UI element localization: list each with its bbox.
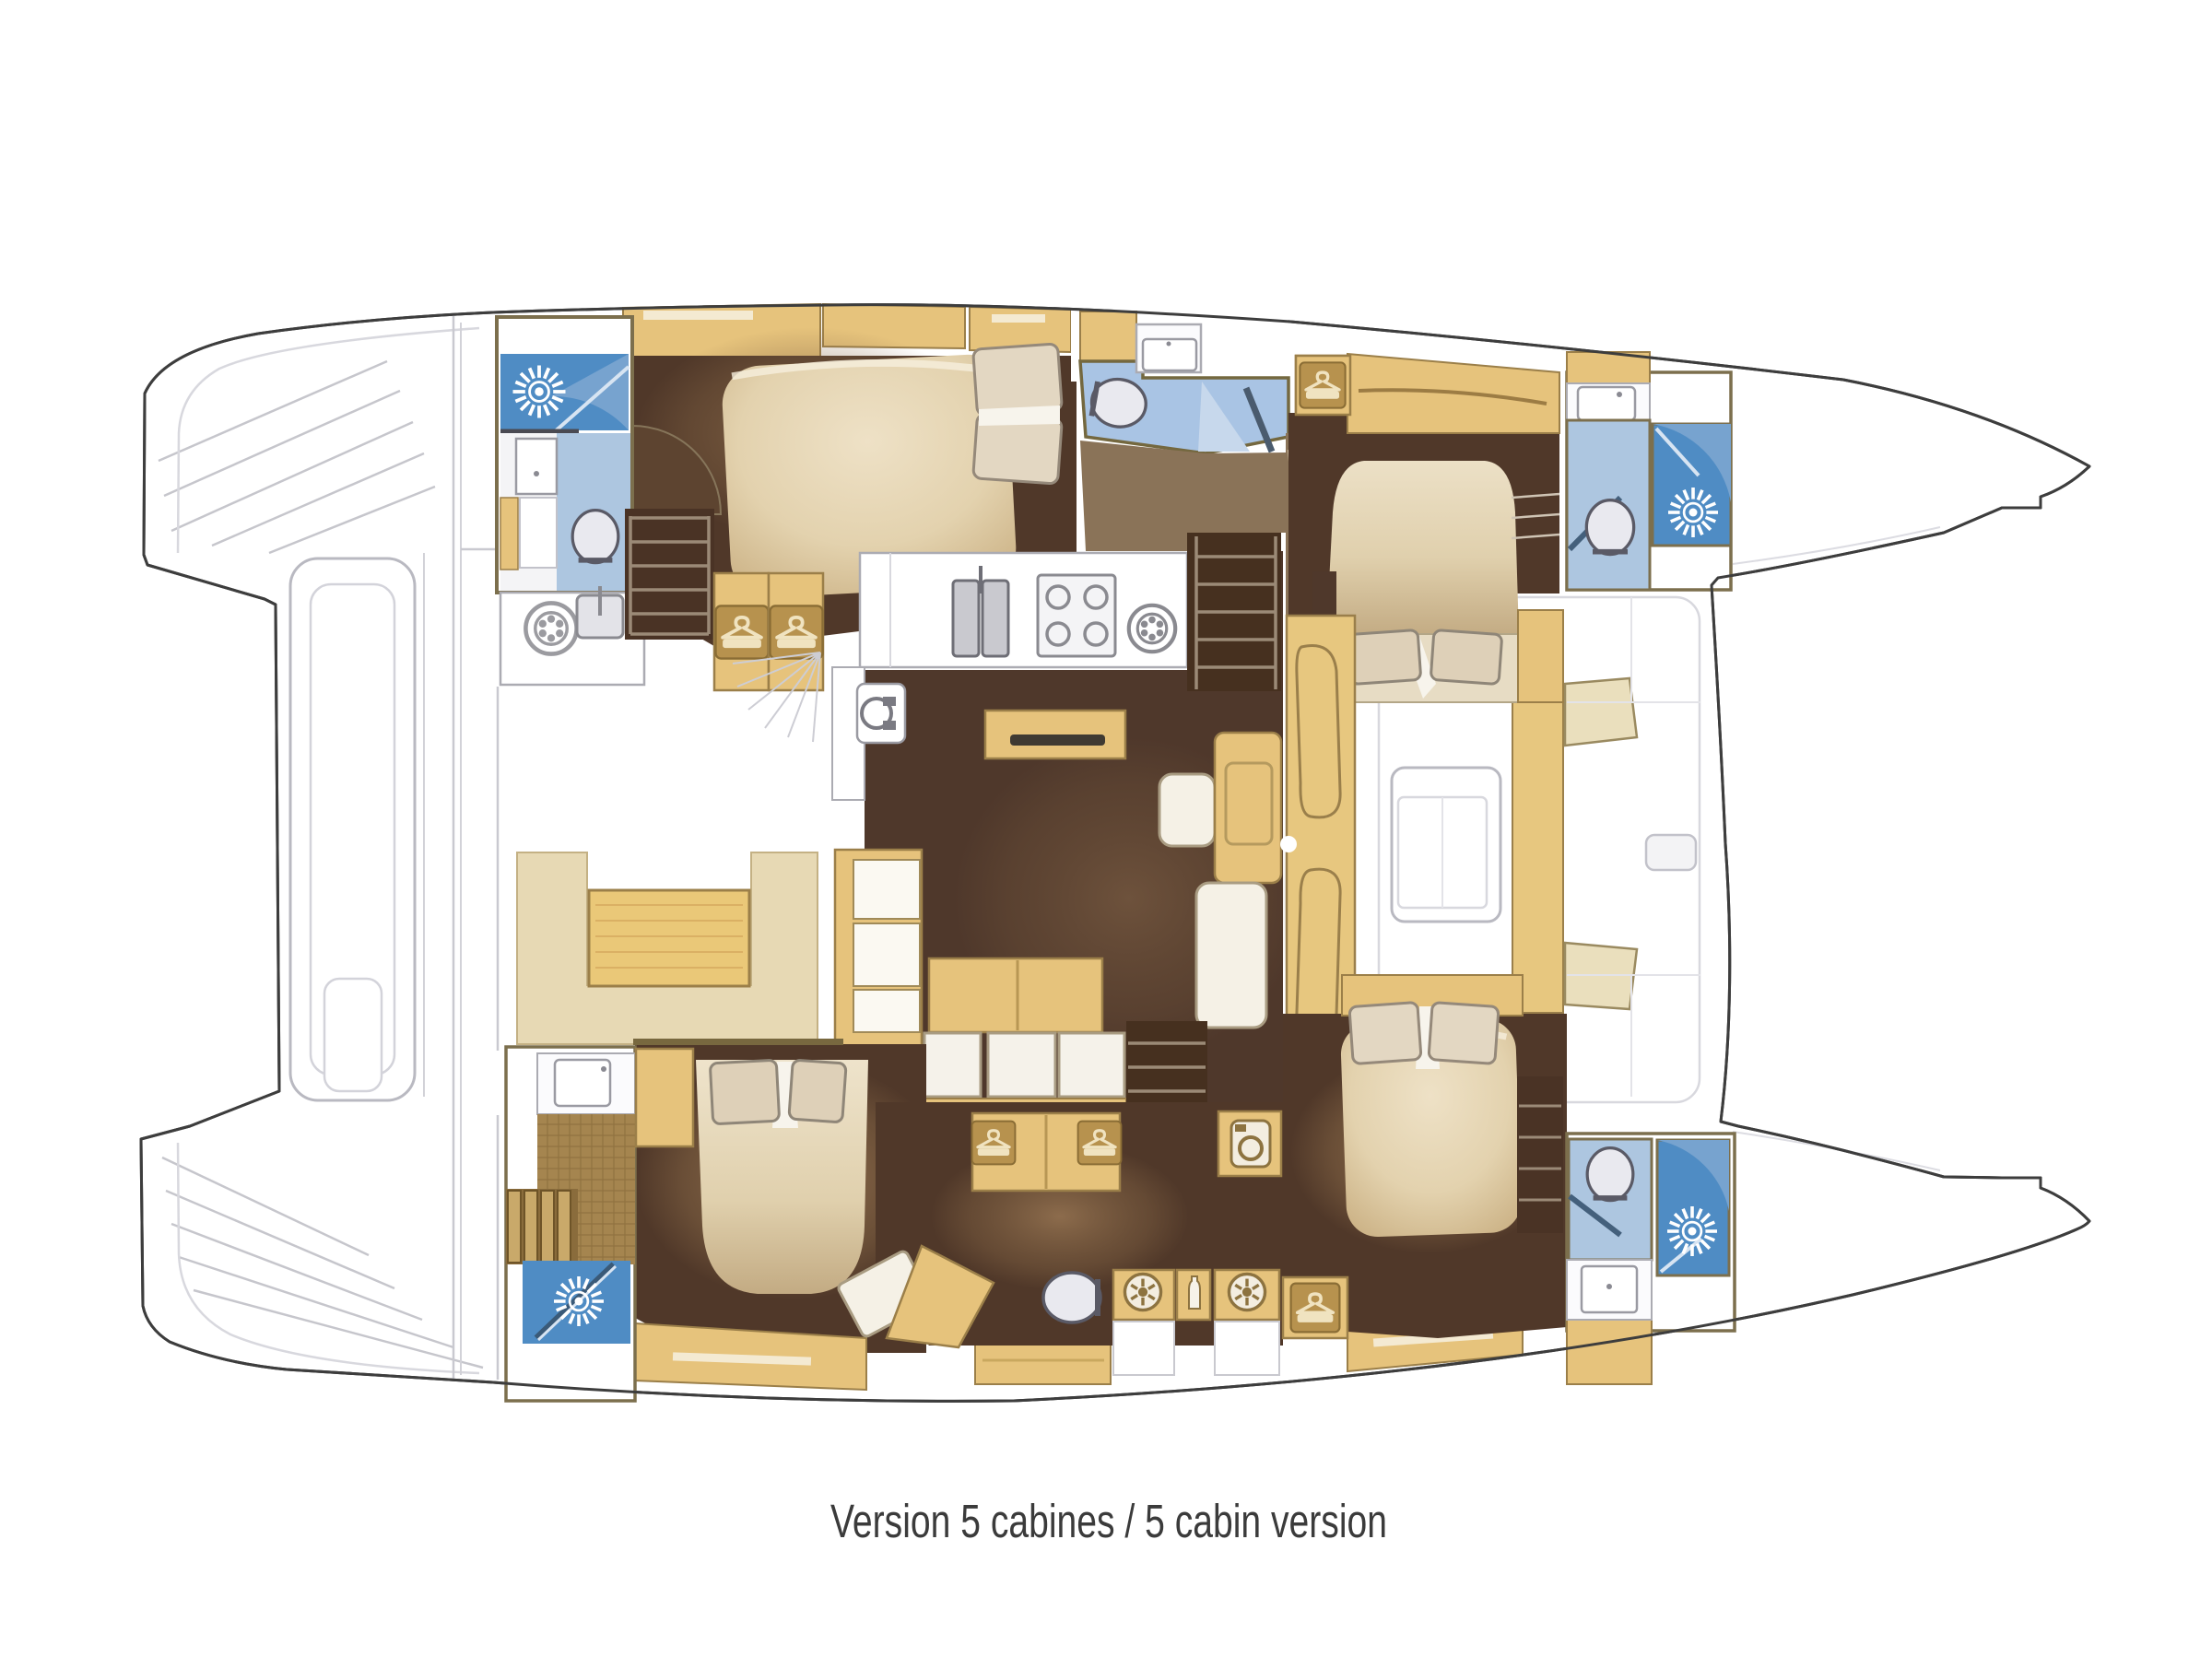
svg-text:Version 5 cabines / 5 cabin ve: Version 5 cabines / 5 cabin version bbox=[830, 1495, 1387, 1547]
